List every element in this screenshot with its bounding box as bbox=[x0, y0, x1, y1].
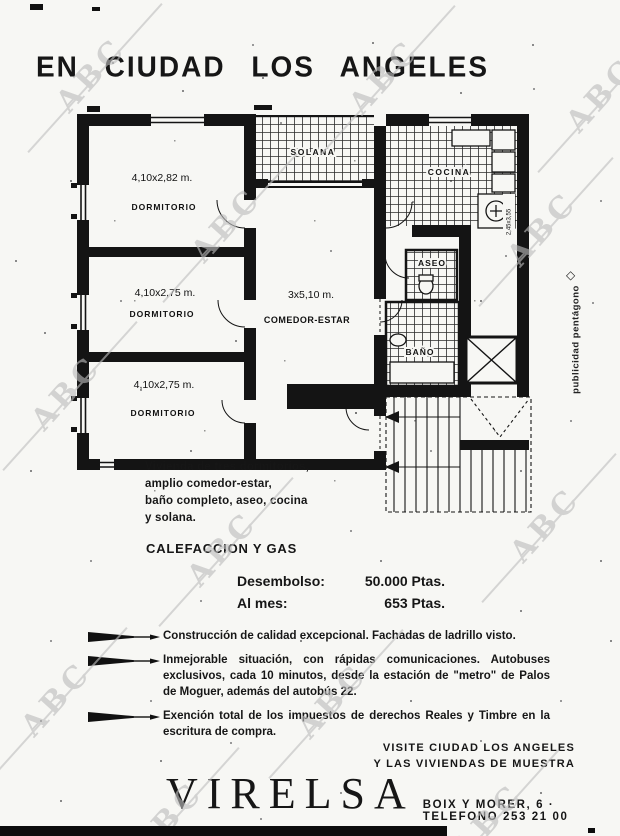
bottom-scan-bar bbox=[0, 826, 447, 836]
dorm3-dim: 4,10x2,75 m. bbox=[134, 379, 195, 391]
stairs bbox=[385, 397, 531, 512]
description-line: baño completo, aseo, cocina bbox=[145, 493, 309, 510]
description-line: Vivienda de tres dormitorios, bbox=[145, 459, 309, 476]
dorm1-dim: 4,10x2,82 m. bbox=[132, 172, 193, 184]
bullet-text: Exención total de los impuestos de derec… bbox=[163, 708, 550, 740]
arrow-pen-icon bbox=[88, 655, 163, 667]
list-item: Inmejorable situación, con rápidas comun… bbox=[88, 652, 550, 700]
address-phone: BOIX Y MORER, 6 · TELEFONO 253 21 00 bbox=[423, 799, 620, 823]
scan-artifact bbox=[588, 828, 595, 833]
scan-artifact bbox=[30, 4, 43, 10]
advertiser-row: VIRELSA BOIX Y MORER, 6 · TELEFONO 253 2… bbox=[166, 768, 620, 823]
pentagon-logo-icon: ◇ bbox=[566, 268, 575, 282]
down-payment-value: 50.000 Ptas. bbox=[333, 570, 445, 592]
description-line: y solana. bbox=[145, 510, 309, 527]
dorm2-dim: 4,10x2,75 m. bbox=[135, 287, 196, 299]
bathtub bbox=[390, 362, 454, 383]
bano-label: BAÑO bbox=[405, 347, 434, 357]
monthly-payment-row: Al mes: 653 Ptas. bbox=[237, 592, 445, 614]
elevator-shaft bbox=[466, 337, 517, 383]
dwelling-description: Vivienda de tres dormitorios, amplio com… bbox=[145, 459, 309, 527]
watermark-slash bbox=[537, 23, 620, 173]
comedor-label: COMEDOR-ESTAR bbox=[264, 315, 350, 325]
arrow-pen-icon bbox=[88, 711, 163, 723]
visit-line: VISITE CIUDAD LOS ANGELES bbox=[355, 740, 575, 756]
ad-title: EN CIUDAD LOS ANGELES bbox=[36, 50, 489, 83]
arrow-pen-icon bbox=[88, 631, 163, 643]
stair-direction-arrow bbox=[385, 411, 399, 423]
scan-artifact bbox=[92, 7, 100, 11]
bullet-text: Inmejorable situación, con rápidas comun… bbox=[163, 652, 550, 700]
payment-info: Desembolso: 50.000 Ptas. Al mes: 653 Pta… bbox=[237, 570, 445, 614]
advertiser-name: VIRELSA bbox=[166, 768, 415, 819]
list-item: Construcción de calidad excepcional. Fac… bbox=[88, 628, 550, 644]
floorplan: 4,10x2,82 m. DORMITORIO 4,10x2,75 m. DOR… bbox=[54, 100, 546, 520]
abc-watermark: ABC bbox=[540, 29, 620, 167]
dorm3-label: DORMITORIO bbox=[130, 408, 195, 418]
washbasin bbox=[390, 334, 406, 346]
selling-points: Construcción de calidad excepcional. Fac… bbox=[88, 628, 550, 748]
scan-noise bbox=[0, 0, 2, 2]
newspaper-ad-page: EN CIUDAD LOS ANGELES bbox=[0, 0, 620, 836]
down-payment-row: Desembolso: 50.000 Ptas. bbox=[237, 570, 445, 592]
aseo-label: ASEO bbox=[418, 258, 446, 268]
down-payment-label: Desembolso: bbox=[237, 570, 333, 592]
list-item: Exención total de los impuestos de derec… bbox=[88, 708, 550, 740]
ad-agency-credit: publicidad pentágono bbox=[570, 285, 583, 395]
solana-label: SOLANA bbox=[291, 147, 336, 157]
description-line: amplio comedor-estar, bbox=[145, 476, 309, 493]
dorm2-label: DORMITORIO bbox=[129, 309, 194, 319]
stair-direction-arrow bbox=[385, 461, 399, 473]
monthly-payment-label: Al mes: bbox=[237, 592, 333, 614]
bullet-text: Construcción de calidad excepcional. Fac… bbox=[163, 628, 550, 644]
cocina-label: COCINA bbox=[428, 167, 471, 177]
cocina-dim-vertical: 2,45x3,55 bbox=[507, 208, 513, 235]
heating-gas-heading: CALEFACCION Y GAS bbox=[146, 541, 297, 556]
monthly-payment-value: 653 Ptas. bbox=[333, 592, 445, 614]
dorm1-label: DORMITORIO bbox=[131, 202, 196, 212]
comedor-dim: 3x5,10 m. bbox=[288, 289, 334, 301]
